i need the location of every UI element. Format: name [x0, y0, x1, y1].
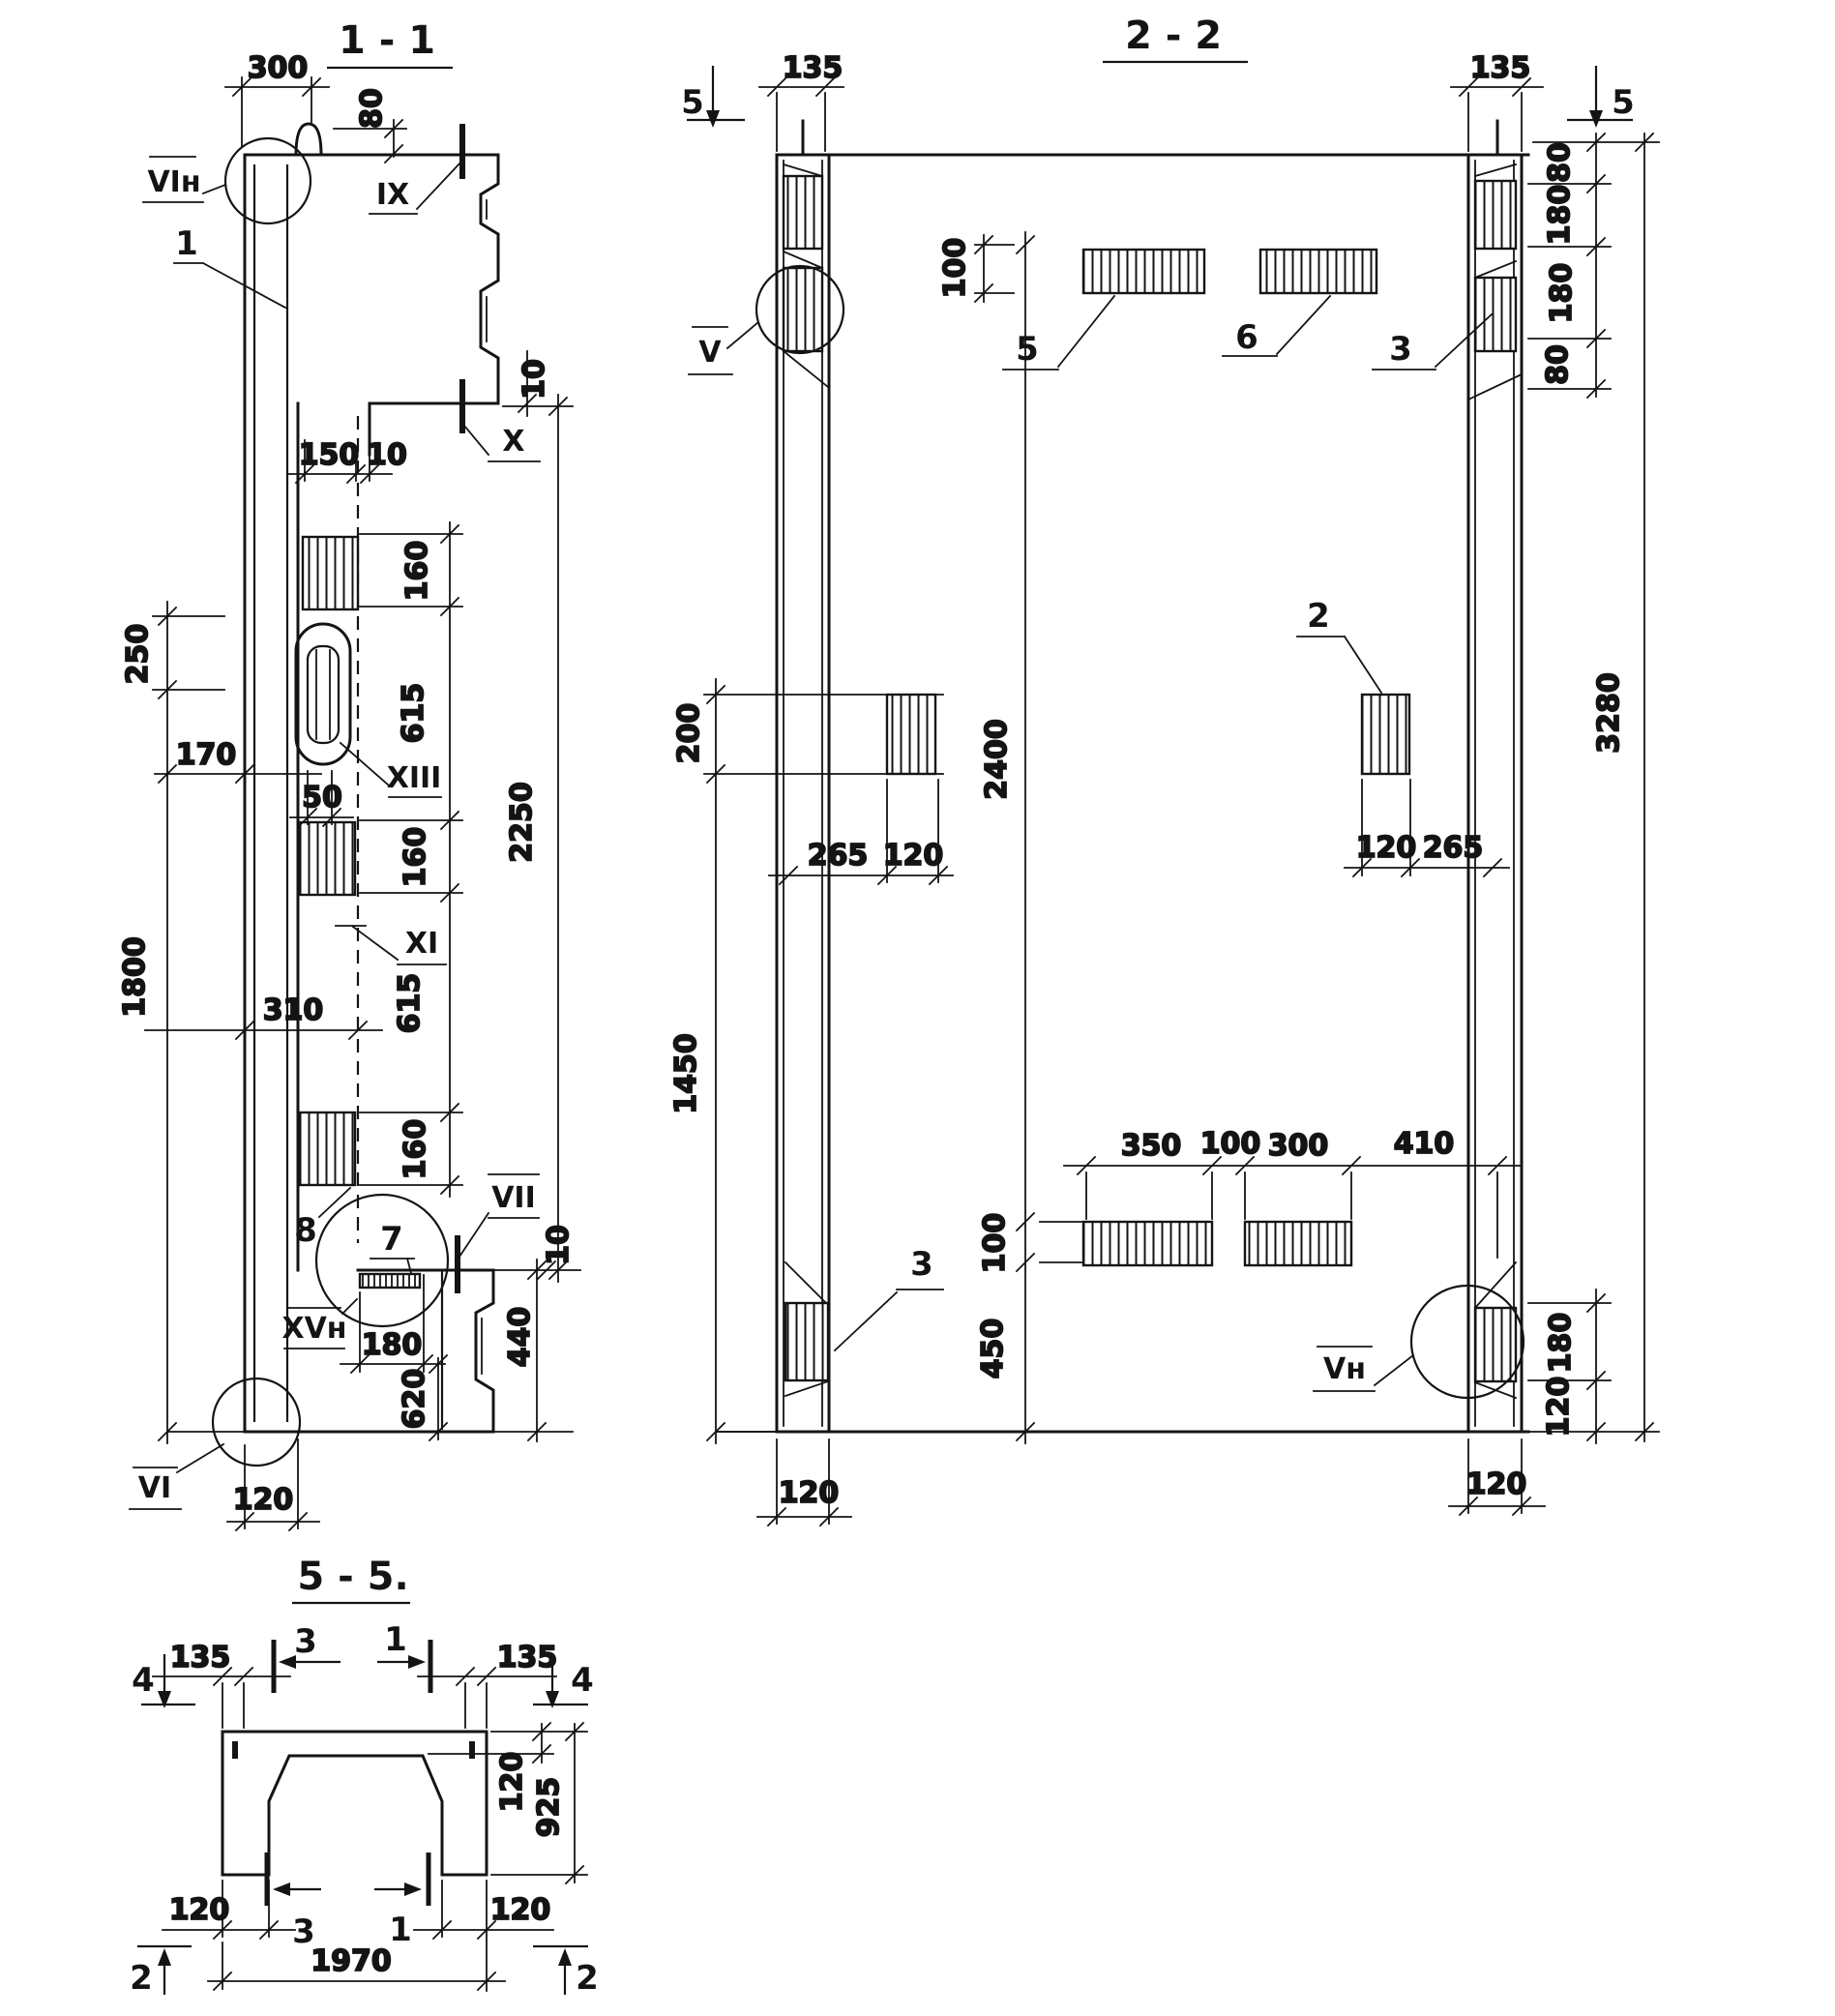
- detail-circle-vii: [316, 1195, 448, 1326]
- dim-440: 440: [495, 1260, 573, 1441]
- dim-135-left: 135: [153, 1641, 290, 1728]
- dim-chain-inner: 2400 100 450: [976, 232, 1081, 1443]
- marker-3-bottom: 3: [267, 1853, 321, 1951]
- detail-label-xiii: XIII: [340, 743, 441, 797]
- detail-label-ix: IX: [370, 163, 460, 214]
- marker-number: 1: [384, 1620, 407, 1659]
- dim-265-120-left: 265 120: [769, 780, 953, 884]
- leader-1: 1: [174, 224, 285, 308]
- rebar-section: [1245, 1222, 1351, 1265]
- rebar-section: [784, 176, 822, 249]
- dim-text: 410: [1394, 1127, 1455, 1161]
- leader-number: 5: [1016, 330, 1039, 369]
- section-title: 1 - 1: [339, 18, 435, 63]
- marker-number: 4: [571, 1661, 594, 1700]
- dim-100-top: 100: [938, 235, 1014, 302]
- cut-ticks: [458, 124, 462, 1293]
- dim-text: 1800: [118, 936, 152, 1018]
- rebar-section: [1083, 1222, 1212, 1265]
- rebar-section: [303, 537, 358, 609]
- dim-120-bottom-left: 120: [757, 1439, 851, 1526]
- panel-inner-lines: [254, 164, 487, 1430]
- dim-text: 180: [1543, 185, 1577, 246]
- dim-text: 10: [518, 359, 551, 400]
- marker-1-bottom: 1: [374, 1853, 429, 1949]
- rebar-section: [1475, 181, 1516, 249]
- dim-text: 135: [783, 51, 844, 85]
- dim-text: 120: [779, 1476, 840, 1510]
- leader-number: 1: [175, 224, 198, 263]
- dim-text: 250: [121, 624, 155, 685]
- dim-text: 80: [1543, 142, 1577, 183]
- dim-text: 2250: [505, 782, 539, 863]
- detail-label-vin: VIн: [143, 157, 225, 202]
- section-5-5: 5 - 5. 4 4 135 135: [130, 1555, 599, 1998]
- dim-text: 1970: [311, 1944, 392, 1978]
- dim-text: 120: [883, 839, 944, 873]
- dim-text: 615: [397, 683, 430, 744]
- leader-5: 5: [1003, 296, 1114, 370]
- weld-strip: [360, 1274, 420, 1288]
- rebar-section: [300, 1112, 355, 1185]
- marker-number: 2: [576, 1959, 599, 1998]
- detail-label-xvn: XVн: [281, 1299, 357, 1349]
- detail-label-v: V: [689, 322, 758, 374]
- detail-label-x: X: [464, 425, 540, 461]
- dim-text: 80: [355, 88, 389, 129]
- dim-text: 440: [503, 1307, 537, 1368]
- rebar-section: [1083, 250, 1204, 293]
- dim-text: 120: [169, 1893, 230, 1927]
- dim-text: 300: [1268, 1129, 1329, 1163]
- dim-text: 100: [938, 238, 972, 299]
- dim-text: 100: [1200, 1127, 1261, 1161]
- marker-number: 3: [294, 1622, 317, 1661]
- section-title: 2 - 2: [1125, 14, 1222, 58]
- dim-text: 160: [400, 541, 434, 602]
- dim-text: 120: [1542, 1377, 1576, 1438]
- marker-number: 1: [389, 1911, 412, 1949]
- leader-number: 8: [294, 1211, 317, 1250]
- dim-text: 925: [532, 1777, 566, 1838]
- blueprint-page: 1 - 1: [0, 0, 1835, 2016]
- dim-text: 120: [233, 1483, 294, 1517]
- leader-2: 2: [1297, 597, 1381, 693]
- detail-label-xi: XI: [336, 926, 446, 964]
- detail-label: Vн: [1323, 1352, 1366, 1386]
- leader-8: 8: [294, 1188, 350, 1250]
- dim-text: 265: [808, 839, 869, 873]
- dim-text: 200: [672, 703, 706, 764]
- dim-text: 100: [978, 1213, 1012, 1274]
- marker-3-top: 3: [274, 1622, 340, 1693]
- dim-text: 150: [299, 438, 360, 472]
- dim-text: 2400: [980, 719, 1014, 800]
- rebar-section: [887, 695, 935, 774]
- dim-text: 620: [398, 1369, 431, 1430]
- dim-text: 160: [399, 827, 432, 888]
- rebar-section: [1362, 695, 1409, 774]
- rebar-section: [1260, 250, 1376, 293]
- dim-1970: 1970: [208, 1942, 505, 1990]
- marker-number: 5: [681, 83, 704, 122]
- section-5-5-title: 5 - 5.: [292, 1555, 410, 1603]
- dim-120-bottom-right: 120: [1449, 1439, 1545, 1515]
- detail-label: XIII: [387, 761, 442, 795]
- marker-5-right: 5: [1567, 66, 1635, 128]
- dim-text: 50: [302, 781, 342, 815]
- marker-5-left: 5: [681, 66, 745, 128]
- marker-number: 4: [132, 1661, 155, 1700]
- dim-180-bottom: 180: [340, 1275, 445, 1373]
- marker-1-top: 1: [377, 1620, 430, 1693]
- dim-text: 170: [176, 738, 237, 772]
- dim-text: 310: [263, 993, 324, 1027]
- dim-300: 300: [225, 51, 329, 147]
- detail-label-vn: Vн: [1314, 1347, 1413, 1391]
- dim-chain-right-bottom: 180 120: [1528, 1290, 1611, 1443]
- detail-label: IX: [376, 178, 409, 212]
- dim-text: 80: [1541, 344, 1575, 385]
- dim-text: 180: [362, 1328, 423, 1362]
- dim-2250: 2250: [495, 395, 580, 1282]
- dim-text: 180: [1544, 1313, 1578, 1374]
- dim-text: 120: [495, 1752, 529, 1813]
- dim-text: 10: [367, 438, 407, 472]
- dim-text: 120: [1466, 1468, 1527, 1501]
- dim-620: 620: [398, 1355, 447, 1440]
- leader-number: 2: [1307, 597, 1330, 636]
- detail-label: VIн: [147, 165, 200, 199]
- dim-text: 1450: [669, 1033, 703, 1114]
- dim-text: 300: [248, 51, 309, 85]
- dim-text: 135: [497, 1641, 558, 1675]
- marker-2-right: 2: [533, 1946, 599, 1998]
- marker-number: 5: [1612, 83, 1635, 122]
- dim-120-bottom: 120: [227, 1439, 319, 1530]
- dim-120-265-right: 120 265: [1345, 780, 1509, 876]
- rebar-section: [1475, 278, 1516, 351]
- detail-label: X: [502, 425, 524, 459]
- rebar-section: [784, 268, 822, 351]
- dim-chain-inner: 160 615 160 615 160: [360, 522, 462, 1197]
- section-2-2: 2 - 2: [669, 14, 1659, 1526]
- dim-text: 180: [1545, 263, 1579, 324]
- section-title: 5 - 5.: [297, 1555, 408, 1599]
- dim-text: 120: [1356, 831, 1417, 865]
- detail-label: XI: [405, 927, 438, 961]
- rebar-section: [300, 822, 355, 895]
- dim-text: 120: [490, 1893, 551, 1927]
- dim-text: 135: [1470, 51, 1531, 85]
- leader-number: 7: [380, 1220, 403, 1259]
- leader-number: 6: [1235, 318, 1258, 357]
- section-1-1: 1 - 1: [118, 18, 580, 1530]
- leader-number: 3: [1389, 330, 1412, 369]
- dim-text: 10: [542, 1225, 576, 1265]
- dim-80: 80: [334, 88, 406, 163]
- marker-number: 2: [130, 1959, 153, 1998]
- leader-number: 3: [910, 1245, 933, 1284]
- dim-3280: 3280: [1592, 133, 1653, 1441]
- dim-text: 615: [393, 973, 427, 1034]
- dim-text: 265: [1423, 831, 1484, 865]
- detail-label-vii: VII: [459, 1174, 539, 1257]
- dim-310: 310: [145, 993, 382, 1039]
- detail-label: XVн: [281, 1312, 346, 1346]
- detail-label: V: [698, 336, 722, 370]
- dim-120-bottom-right: 120: [414, 1881, 553, 1991]
- rebar-section: [1475, 1308, 1516, 1381]
- leader-7: 7: [370, 1220, 414, 1273]
- dim-text: 160: [399, 1119, 432, 1180]
- dim-text: 450: [976, 1319, 1010, 1379]
- dim-text: 350: [1121, 1129, 1182, 1163]
- dim-135-right: 135: [418, 1641, 557, 1728]
- dim-chain-left: 250 1800: [118, 602, 245, 1443]
- section-1-1-title: 1 - 1: [327, 18, 453, 68]
- detail-label: VI: [138, 1471, 171, 1505]
- top-tick-marks: [803, 121, 1497, 153]
- dim-text: 3280: [1592, 672, 1626, 754]
- dim-150-10: 150 10: [288, 438, 407, 483]
- leader-6: 6: [1223, 296, 1330, 357]
- section-2-2-title: 2 - 2: [1103, 14, 1248, 62]
- marker-2-left: 2: [130, 1946, 192, 1998]
- rebar-section: [785, 1303, 828, 1380]
- detail-circle-vin: [225, 138, 311, 223]
- detail-label-vi: VI: [130, 1444, 223, 1509]
- dim-text: 135: [170, 1641, 231, 1675]
- leader-3-right: 3: [1373, 314, 1492, 370]
- leader-3-left: 3: [835, 1245, 943, 1350]
- dim-chain-right-top: 80 180 180 80: [1528, 133, 1659, 398]
- detail-label: VII: [491, 1181, 536, 1215]
